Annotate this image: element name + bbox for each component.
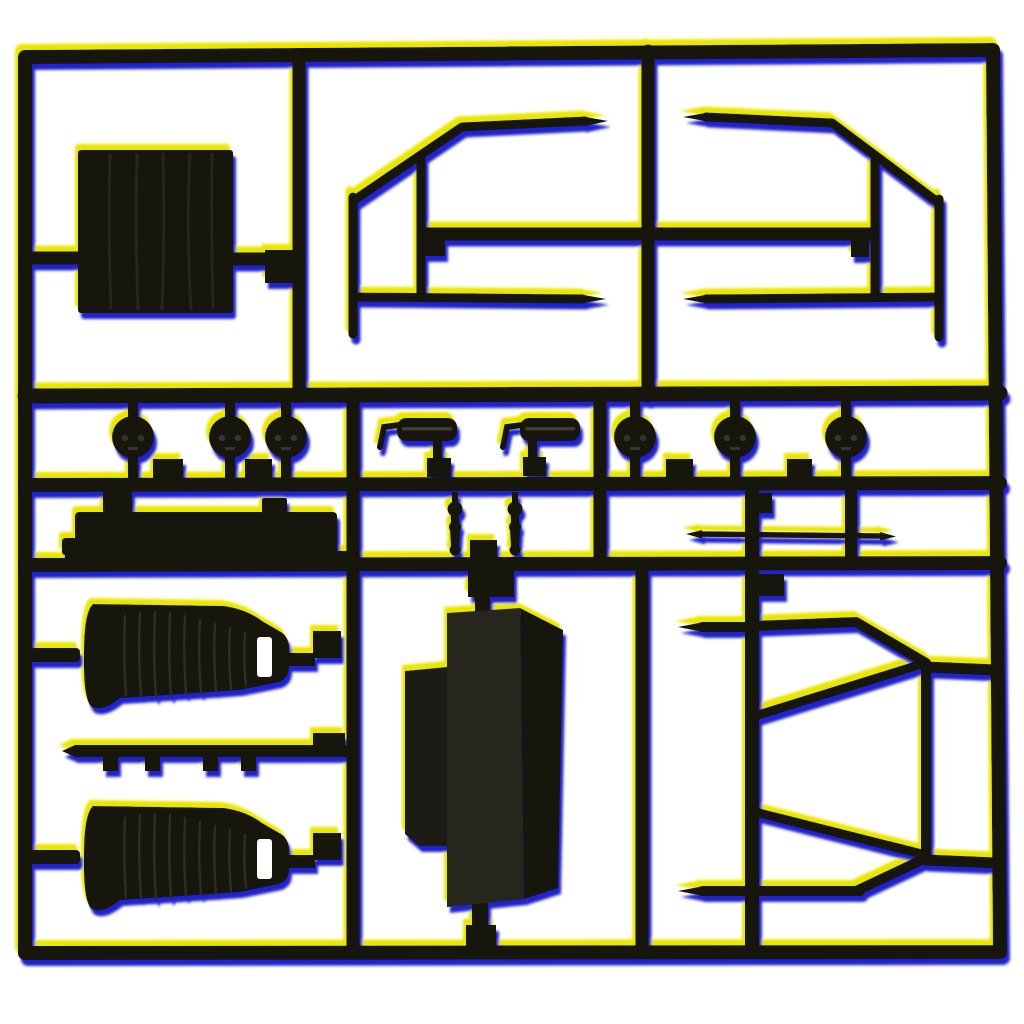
sprue-tab — [153, 459, 183, 478]
sprue-tab — [245, 459, 272, 478]
sprue-photo — [0, 0, 1024, 1024]
sprue-tab — [787, 459, 812, 478]
sprue-tab — [666, 459, 693, 478]
sprue-photo-canvas — [0, 0, 1024, 1024]
